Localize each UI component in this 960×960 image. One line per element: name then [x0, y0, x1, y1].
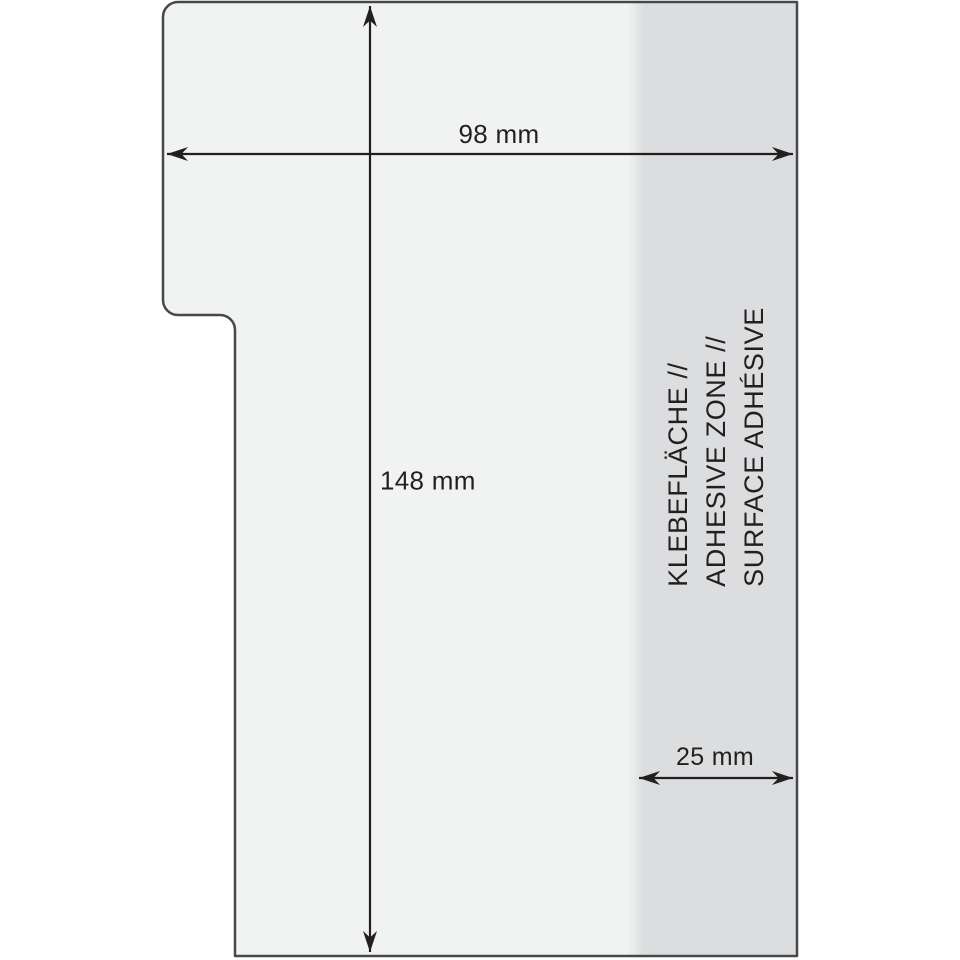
adhesive-zone-label-line-en: ADHESIVE ZONE //: [697, 307, 735, 587]
adhesive-zone-label-line-de: KLEBEFLÄCHE //: [659, 307, 697, 587]
width-dimension-label: 98 mm: [459, 119, 540, 150]
adhesive-width-dimension-label: 25 mm: [676, 743, 754, 772]
height-dimension-label: 148 mm: [380, 466, 476, 497]
product-diagram: 98 mm 148 mm 25 mm KLEBEFLÄCHE // ADHESI…: [0, 0, 960, 960]
adhesive-zone-label-line-fr: SURFACE ADHÉSIVE: [735, 307, 773, 587]
adhesive-zone-label: KLEBEFLÄCHE // ADHESIVE ZONE // SURFACE …: [659, 307, 773, 587]
